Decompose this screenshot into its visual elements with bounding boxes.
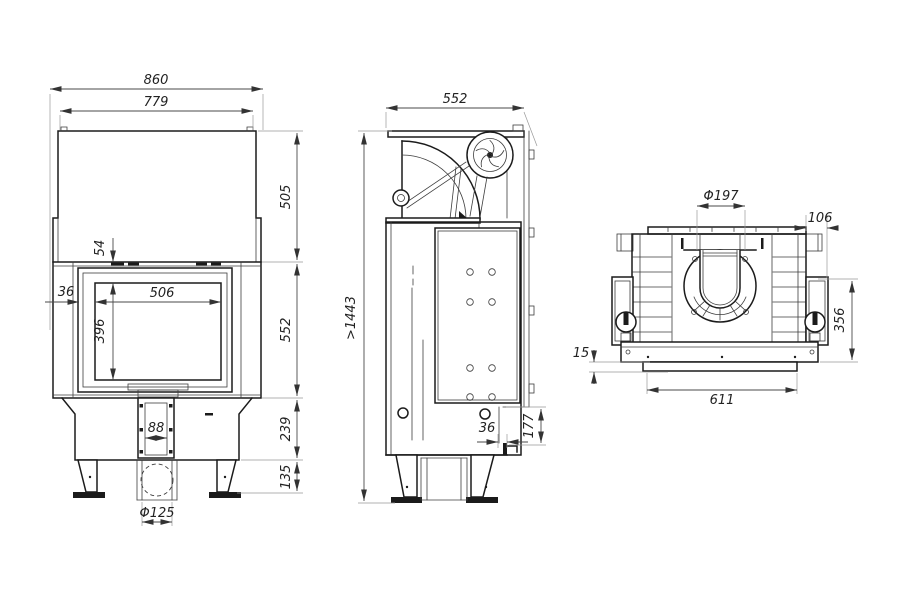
air-intake-circle — [141, 464, 173, 496]
dim-front-height: 552 — [279, 318, 294, 343]
dim-rear-base-lip: 15 — [573, 346, 590, 361]
dim-front-top-gap: 54 — [93, 240, 108, 257]
technical-drawing-page: 860 779 505 552 239 135 54 36 506 — [0, 0, 900, 600]
dim-front-overall-width: 860 — [144, 73, 169, 88]
right-foot — [209, 492, 241, 498]
front-hood — [53, 127, 261, 262]
dim-rear-base-width: 611 — [710, 393, 735, 408]
damper-pivot — [393, 190, 409, 206]
dim-side-rear-offset: 36 — [479, 421, 496, 436]
dim-front-body-width: 779 — [144, 95, 169, 110]
side-legs — [391, 455, 498, 503]
grille-slot — [111, 263, 124, 266]
air-intake-duct — [137, 460, 177, 500]
rear-heat-shield — [435, 228, 520, 403]
dim-front-intake-diameter: Φ125 — [139, 506, 174, 521]
side-intake-duct — [421, 458, 467, 500]
dim-front-hood-height: 505 — [279, 185, 294, 210]
front-right-leg — [217, 460, 236, 492]
left-foot — [73, 492, 105, 498]
technical-drawing: 860 779 505 552 239 135 54 36 506 — [0, 0, 900, 600]
front-view: 860 779 505 552 239 135 54 36 506 — [45, 73, 303, 526]
dim-front-frame-offset: 36 — [58, 285, 75, 300]
dim-rear-mount-height: 356 — [833, 308, 848, 333]
damper-assembly — [386, 141, 480, 223]
dim-front-duct-width: 88 — [148, 421, 165, 436]
dim-front-glass-height: 396 — [93, 319, 108, 344]
rear-base-plate — [643, 362, 797, 371]
dim-front-base-height: 239 — [279, 417, 294, 442]
rear-view: Φ197 106 356 15 611 — [573, 189, 858, 408]
grille-slot — [196, 263, 207, 266]
grille-slot — [211, 263, 221, 266]
dim-front-leg-height: 135 — [279, 465, 294, 490]
dim-rear-flue-diameter: Φ197 — [703, 189, 739, 204]
rear-top-plate — [648, 227, 806, 234]
grille-slot — [128, 263, 139, 266]
dim-rear-top-right-offset: 106 — [808, 211, 833, 226]
rear-panel-clips — [529, 150, 534, 393]
front-left-leg — [78, 460, 97, 492]
rear-bottom-frame — [621, 342, 818, 371]
dim-side-total-height: >1443 — [344, 296, 359, 340]
dim-side-depth: 552 — [443, 92, 468, 107]
dim-front-glass-width: 506 — [150, 286, 175, 301]
front-base — [62, 398, 252, 500]
side-body — [386, 222, 529, 455]
fan-icon — [467, 132, 513, 218]
dim-side-rear-step: 177 — [522, 413, 537, 439]
side-view: 552 >1443 36 177 — [344, 92, 546, 503]
